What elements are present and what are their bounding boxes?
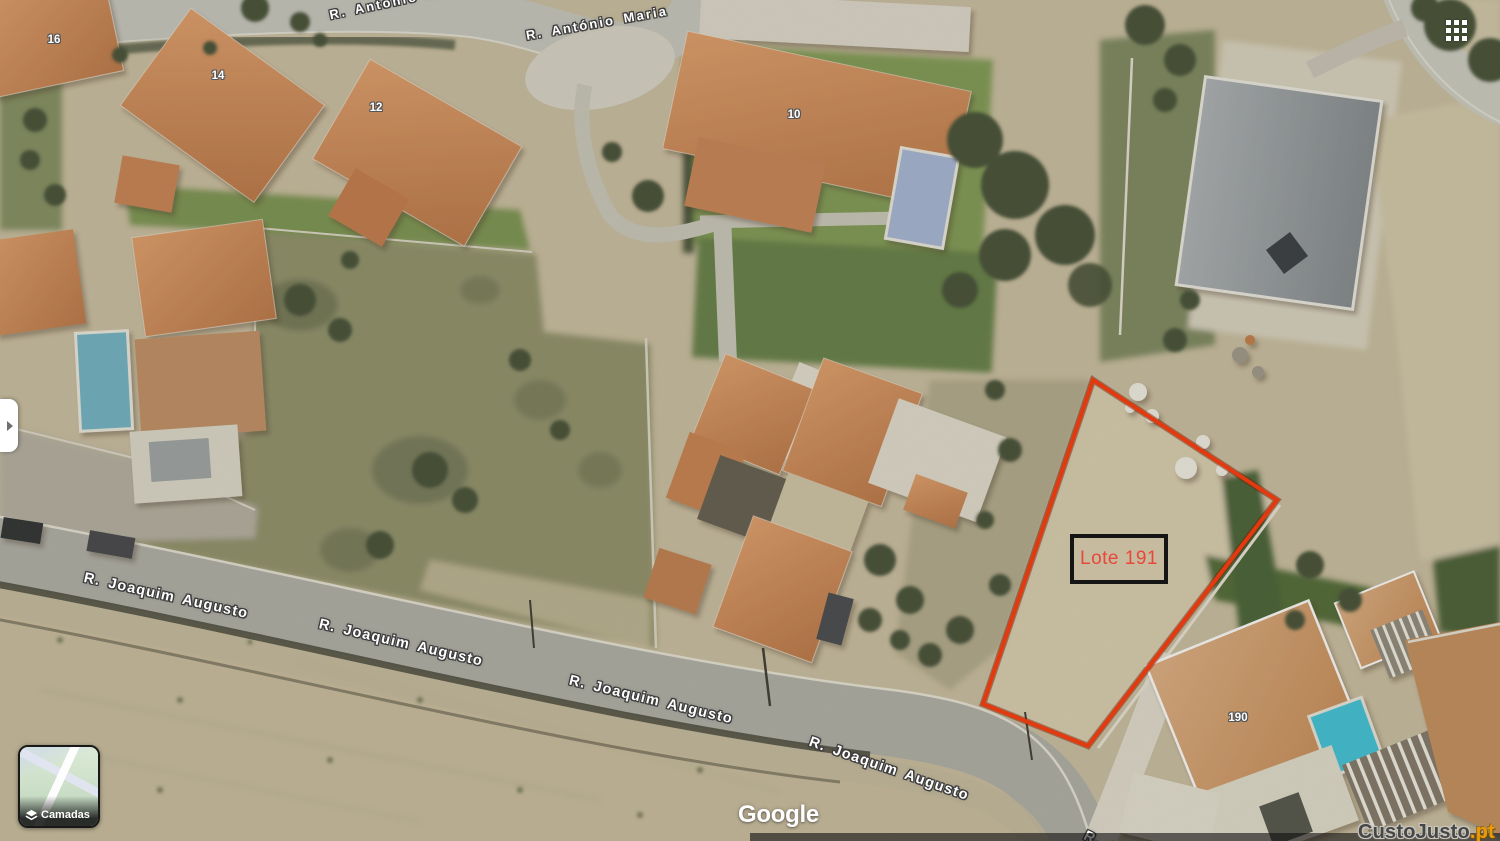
photo-grain — [0, 0, 1500, 841]
lot-label-text: Lote 191 — [1080, 548, 1158, 570]
watermark-name: CustoJusto — [1358, 821, 1470, 841]
satellite-map[interactable]: R. António MariaR. António MariaR. Joaqu… — [0, 0, 1500, 841]
custojusto-watermark: CustoJusto.pt — [1358, 821, 1495, 841]
side-panel-toggle-button[interactable] — [0, 399, 18, 452]
google-apps-grid-icon[interactable] — [1446, 20, 1467, 41]
lot-label: Lote 191 — [1070, 534, 1168, 584]
google-logo[interactable]: Google — [738, 801, 819, 829]
layers-caption: Camadas — [20, 796, 98, 826]
layers-button-label: Camadas — [41, 809, 90, 822]
layers-button[interactable]: Camadas — [18, 745, 100, 828]
satellite-imagery — [0, 0, 1500, 841]
watermark-tld: .pt — [1470, 821, 1495, 841]
chevron-right-icon — [7, 421, 13, 431]
layers-icon — [25, 809, 38, 822]
